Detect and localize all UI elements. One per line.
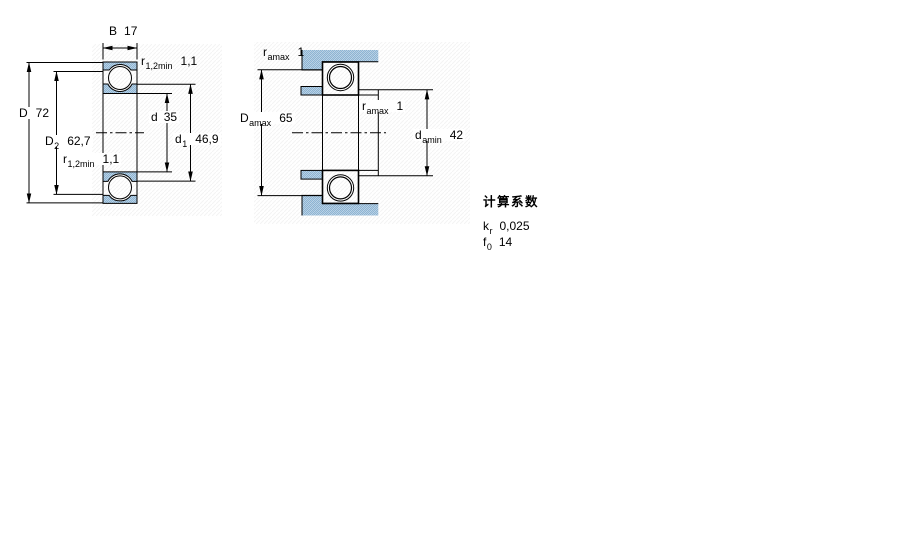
- calculation-factors-title: 计算系数: [483, 196, 539, 209]
- dimension-D: [27, 63, 104, 203]
- dim-subscript: 1,2min: [146, 61, 173, 71]
- dim-symbol: r: [141, 54, 145, 68]
- factor-value: 14: [499, 235, 512, 249]
- dim-label-ramax-mid: ramax1: [360, 100, 405, 112]
- dim-value: 17: [124, 24, 137, 38]
- dim-subscript: 1,2min: [68, 159, 95, 169]
- dim-subscript: 2: [54, 141, 59, 151]
- dim-label-r12min-top: r1,2min1,1: [141, 55, 197, 67]
- dim-symbol: B: [109, 24, 117, 38]
- dim-label-D2: D262,7: [43, 135, 93, 147]
- factor-subscript: r: [490, 226, 493, 236]
- dim-subscript: amax: [367, 106, 389, 116]
- technical-drawing: [0, 0, 900, 560]
- factor-kr: kr0,025: [483, 220, 530, 232]
- dim-value: 46,9: [195, 132, 218, 146]
- dim-value: 1: [397, 99, 404, 113]
- dim-symbol: r: [63, 152, 67, 166]
- dim-label-outer-diameter-D: D72: [17, 107, 51, 119]
- dim-subscript: 1: [182, 139, 187, 149]
- bearing-datasheet-drawing: B17 r1,2min1,1 D72 D262,7 r1,2min1,1 d35…: [0, 0, 900, 560]
- factor-symbol: k: [483, 219, 489, 233]
- dim-value: 65: [279, 111, 292, 125]
- factor-value: 0,025: [500, 219, 530, 233]
- dim-value: 42: [450, 128, 463, 142]
- dim-symbol: r: [362, 99, 366, 113]
- dim-subscript: amax: [268, 52, 290, 62]
- dim-subscript: amax: [249, 118, 271, 128]
- dim-label-r12min-bottom: r1,2min1,1: [61, 153, 121, 165]
- dim-symbol: d: [175, 132, 182, 146]
- dim-label-d1: d146,9: [173, 133, 221, 145]
- dim-symbol: D: [45, 134, 54, 148]
- dim-symbol: D: [19, 106, 28, 120]
- dim-label-ramax-top: ramax1: [263, 46, 304, 58]
- dim-value: 62,7: [67, 134, 90, 148]
- dim-symbol: r: [263, 45, 267, 59]
- dim-subscript: amin: [422, 135, 442, 145]
- factor-symbol: f: [483, 235, 486, 249]
- dim-value: 1: [298, 45, 305, 59]
- dim-label-bore-d: d35: [149, 111, 179, 123]
- dim-value: 1,1: [103, 152, 120, 166]
- dim-symbol: D: [240, 111, 249, 125]
- dim-label-damin: damin42: [413, 129, 465, 141]
- factor-f0: f014: [483, 236, 512, 248]
- dim-symbol: d: [415, 128, 422, 142]
- dim-value: 1,1: [181, 54, 198, 68]
- dim-label-width-B: B17: [109, 25, 137, 37]
- factor-subscript: 0: [487, 242, 492, 252]
- dim-value: 72: [36, 106, 49, 120]
- dim-symbol: d: [151, 110, 158, 124]
- drawing-root: [27, 42, 471, 224]
- dim-label-Damax: Damax65: [238, 112, 295, 124]
- dim-value: 35: [164, 110, 177, 124]
